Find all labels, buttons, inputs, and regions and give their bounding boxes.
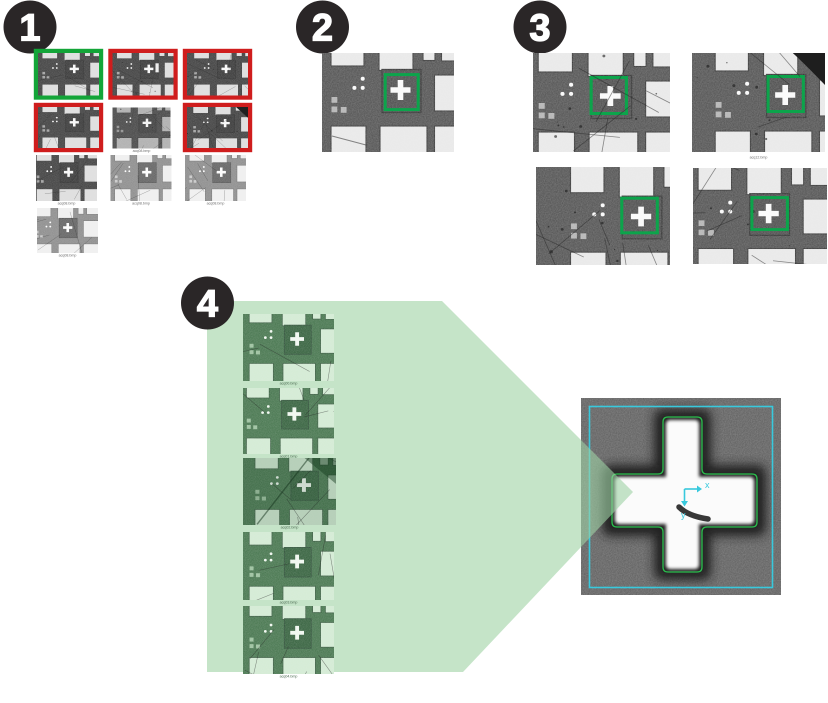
svg-text:acq08.bmp: acq08.bmp [58, 202, 76, 206]
svg-text:acq08.bmp: acq08.bmp [132, 202, 150, 206]
svg-text:2: 2 [312, 8, 333, 50]
svg-text:3: 3 [529, 8, 550, 50]
svg-text:acq08.bmp: acq08.bmp [133, 149, 151, 153]
svg-text:x: x [705, 480, 710, 490]
svg-text:acq00.bmp: acq00.bmp [280, 382, 298, 386]
svg-text:acq03.bmp: acq03.bmp [280, 601, 298, 605]
svg-text:1: 1 [19, 8, 40, 50]
svg-text:acq08.bmp: acq08.bmp [59, 254, 77, 258]
svg-text:y: y [681, 510, 686, 520]
svg-text:4: 4 [197, 284, 218, 326]
svg-text:acq08.bmp: acq08.bmp [207, 202, 225, 206]
svg-text:acq04.bmp: acq04.bmp [280, 675, 298, 679]
svg-text:acq02.bmp: acq02.bmp [281, 526, 299, 530]
svg-text:acq12.bmp: acq12.bmp [750, 156, 768, 160]
